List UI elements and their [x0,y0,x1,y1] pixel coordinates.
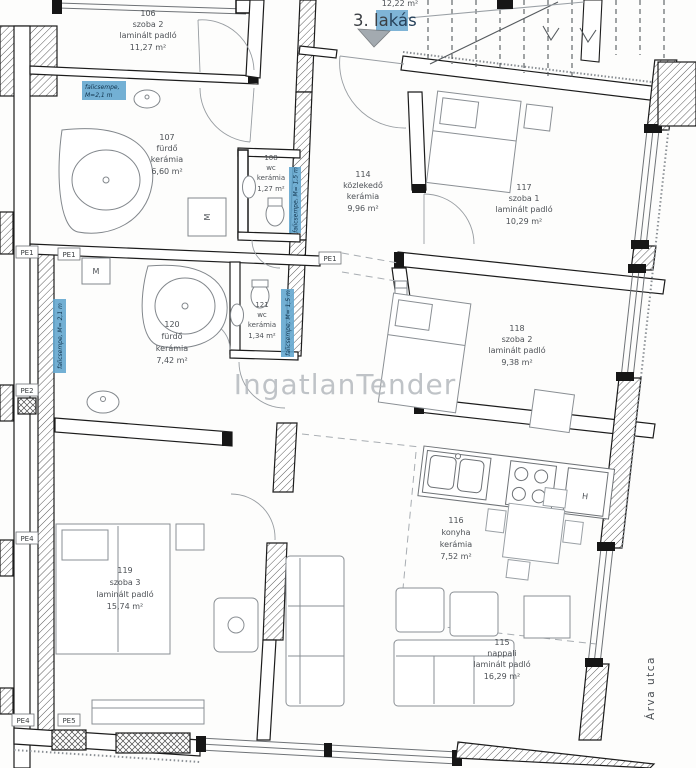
room-name: szoba 3 [110,578,141,587]
room-floor: laminált padló [473,659,530,669]
window-room115 [588,548,613,664]
door-room107 [200,88,250,142]
room-area: 1,34 m² [248,332,276,340]
wall-central-pier2 [263,543,287,640]
wall-jamb [222,432,232,446]
wall-central-1 [296,0,316,92]
window-jamb [616,372,634,381]
sink-basin [427,455,457,490]
wall-jamb [412,184,426,193]
room-floor: kerámia [257,174,285,182]
room-name: wc [266,164,276,172]
room-area: 9,96 m² [347,204,378,213]
room-name: közlekedő [343,181,383,190]
wall-jamb [394,252,404,268]
room-number: 108 [264,154,277,162]
room-area: 7,42 m² [156,356,187,365]
wall-bottom-block [116,733,190,753]
room-area: 15,74 m² [107,602,143,611]
sofa-left-115 [286,556,344,706]
tile-label-top-2: M=2,1 m [85,92,113,99]
room-number: 107 [159,133,174,142]
side-table-decor [228,617,244,633]
room-number: 121 [255,301,268,309]
nightstand [176,524,204,550]
pillow [395,300,432,330]
room-label-118: 118 szoba 2 laminált padló 9,38 m² [488,324,545,367]
door-room106 [198,20,254,70]
faucet [101,397,106,402]
tile-label-top-1: falicsempe, [85,84,120,91]
room-floor: laminált padló [96,589,153,599]
beam-line [302,434,420,447]
room-number: 117 [516,183,531,192]
window-jamb [196,736,206,752]
window-jamb [597,542,615,551]
room-floor: kerámia [151,155,183,164]
room-floor: kerámia [156,344,188,353]
window-jamb [631,240,649,249]
room-area: 16,29 m² [484,672,520,681]
wall-bottom-right [456,742,654,768]
tile-label-left-vertical: falicsempe, M= 2,1 m [57,303,64,369]
nightstand [524,104,553,131]
facade-seg-e [600,378,641,548]
toilet-tank-108 [268,198,282,206]
landing-edge [408,2,584,18]
window-jamb [585,658,603,667]
column [18,398,36,414]
room-number: 116 [448,516,463,525]
room-number: 119 [117,566,132,575]
washbasin-121 [231,304,244,326]
wall-central-pier1 [273,423,297,492]
beam-line [342,253,398,263]
room-name: szoba 2 [133,20,164,29]
wall-wc108-bottom [238,232,300,242]
pilaster [0,540,13,576]
wall-central-lower [257,640,276,740]
faucet [145,95,149,99]
wall-left-inner [38,246,54,738]
wall-bottom-block [52,730,86,750]
kitchen-table [503,503,565,563]
room-number: 120 [164,320,179,329]
wall-106-107 [30,66,258,84]
tile-label-wc108: falicsempe, M= 1,5 m [293,167,300,233]
room-name: szoba 2 [502,335,533,344]
pilaster [0,688,13,714]
room-floor: laminált padló [119,30,176,40]
stair-stringer-wall [581,0,602,62]
pilaster [0,385,13,421]
room-label-116: 116 konyha kerámia 7,52 m² [440,516,472,561]
chair [486,509,507,533]
apartment-title: 3. lakás [353,11,417,30]
faucet [455,453,461,459]
armchair-115 [396,588,444,632]
wall-left-exterior [14,26,30,768]
washbasin-108 [243,176,256,198]
room-area: 6,60 m² [151,167,182,176]
room-floor: kerámia [248,321,276,329]
door-entrance [340,56,406,128]
washer-label-120: M [93,267,100,276]
toilet-tank-121 [252,280,268,287]
window-jamb [628,264,646,273]
chair [506,560,530,581]
door-room119 [231,494,275,540]
room-number: 106 [140,9,155,18]
room-name: wc [257,311,267,319]
stair-arrow [543,26,559,40]
armchair-118 [530,389,575,432]
room-name: szoba 1 [509,194,540,203]
room-floor: kerámia [440,540,472,549]
watermark: IngatlanTender [234,368,456,401]
street-name: Árva utca [644,656,657,720]
pilaster [0,212,13,254]
room-floor: laminált padló [495,204,552,214]
pe-label: PE1 [20,249,33,257]
room-label-121: 121 wc kerámia 1,34 m² [248,301,276,340]
apartment-title-prefix: 3. la [353,11,389,30]
desk-119 [92,700,204,724]
apartment-arrow-icon [358,29,390,47]
chair [563,520,584,544]
coffee-table-115 [524,596,570,638]
window-room117 [634,130,659,246]
room-number: 118 [509,324,524,333]
bathtub-drain [103,177,109,183]
apartment-title-highlight: kás [389,11,417,30]
room-area: 11,27 m² [130,43,166,52]
pe-label: PE2 [20,387,33,395]
room-number: 115 [494,638,509,647]
pillow [440,98,479,128]
floor-plan-svg: 12,22 m² 3. lakás 106 szoba 2 laminált p… [0,0,696,768]
window-jamb [324,743,332,757]
room-label-106: 106 szoba 2 laminált padló 11,27 m² [119,9,176,52]
chair [543,488,567,509]
beam-line [342,272,396,281]
partial-area-label: 12,22 m² [382,0,418,8]
room-area: 1,27 m² [257,185,285,193]
room-label-107: 107 fürdő kerámia 6,60 m² [151,133,183,176]
room-number: 114 [355,170,370,179]
pe-label: PE4 [20,535,34,543]
facade-seg-g [579,664,609,740]
bed-119 [56,524,204,654]
room-label-114: 114 közlekedő kerámia 9,96 m² [343,170,383,213]
bed-117 [426,91,552,196]
wall-120-119 [55,418,232,446]
pe-label: PE5 [62,717,75,725]
wall-117-118 [396,252,665,294]
room-floor: laminált padló [488,345,545,355]
fridge-label: H [582,492,589,502]
room-name: nappali [487,649,516,658]
room-label-108: 108 wc kerámia 1,27 m² [257,154,285,193]
pe-label: PE1 [62,251,75,259]
floor-plan-canvas: 12,22 m² 3. lakás 106 szoba 2 laminált p… [0,0,696,768]
wall-topright-block [658,62,696,126]
room-name: konyha [441,528,470,537]
sink-basin [457,459,485,494]
room-floor: kerámia [347,192,379,201]
pillow [62,530,108,560]
armchair-115 [450,592,498,636]
tile-label-wc121: falicsempe, M= 1,5 m [285,290,292,356]
room-area: 7,52 m² [440,552,471,561]
room-name: fürdő [161,332,182,341]
pe-label: PE4 [16,717,30,725]
bathtub-drain [182,303,188,309]
wall-114-117 [408,92,426,190]
room-name: fürdő [156,144,177,153]
room-area: 9,38 m² [501,358,532,367]
door-room117 [424,194,474,244]
stair-block [497,0,513,9]
window-jamb [52,0,62,14]
pe-label: PE1 [323,255,336,263]
washer-label-107: M [203,213,212,220]
room-area: 10,29 m² [506,217,542,226]
stair-direction-line [430,2,558,64]
